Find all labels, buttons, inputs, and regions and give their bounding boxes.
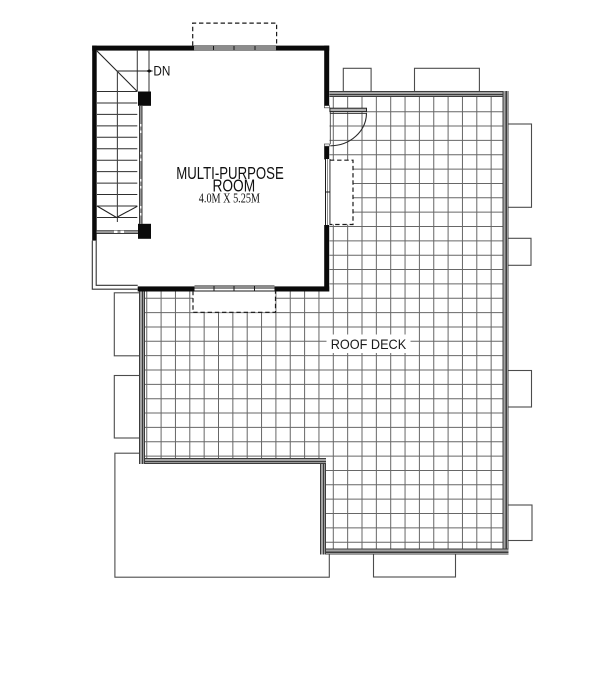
svg-text:DN: DN xyxy=(153,64,170,79)
svg-text:ROOF DECK: ROOF DECK xyxy=(331,337,407,352)
svg-text:4.0M X 5.25M: 4.0M X 5.25M xyxy=(199,191,260,206)
